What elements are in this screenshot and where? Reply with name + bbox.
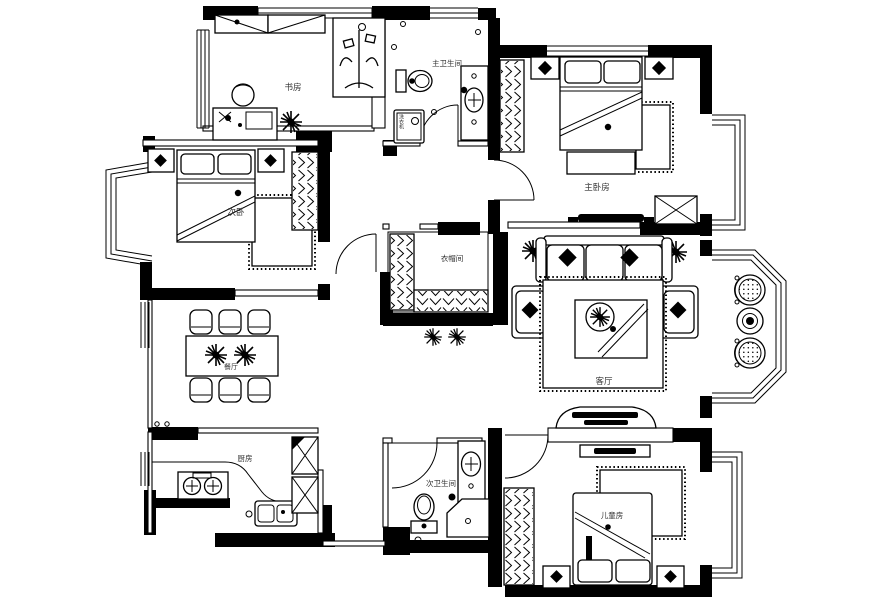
washing-machine-icon: 洗衣机 bbox=[394, 110, 424, 143]
room-cloakroom: 衣帽间 bbox=[390, 234, 488, 346]
floor-plan: 书房 洗衣机 主卫生间 bbox=[0, 0, 895, 604]
kids-balcony-window bbox=[712, 452, 742, 578]
kids-room-door bbox=[505, 435, 548, 478]
bed-icon bbox=[560, 57, 642, 150]
room-label-cloakroom: 衣帽间 bbox=[441, 253, 464, 263]
plant-icon bbox=[590, 307, 610, 327]
nightstand-icon bbox=[531, 57, 559, 79]
room-master-bedroom: 主卧房 bbox=[500, 57, 697, 224]
room-label-second-bathroom: 次卫生间 bbox=[426, 478, 456, 488]
room-label-second-bedroom: 次卧 bbox=[227, 207, 245, 218]
chair-icon bbox=[219, 378, 241, 402]
plant-icon bbox=[448, 328, 466, 346]
plant-icon bbox=[424, 328, 442, 346]
room-master-bathroom: 洗衣机 主卫生间 bbox=[392, 22, 489, 144]
nightstand-icon bbox=[543, 566, 570, 588]
bench-icon bbox=[567, 152, 635, 174]
closet-rail-icon bbox=[414, 290, 488, 312]
second-bedroom-bay-window bbox=[106, 162, 152, 266]
coat-rack-icon bbox=[333, 18, 385, 97]
room-study: 书房 bbox=[213, 15, 385, 140]
tv-cabinet-icon bbox=[556, 407, 656, 428]
bay-tub-chair-icon bbox=[735, 275, 765, 305]
washing-machine-label: 洗衣机 bbox=[398, 113, 404, 130]
pillow-icon bbox=[616, 560, 650, 582]
closet-rail-icon bbox=[390, 234, 414, 310]
chair-icon bbox=[248, 310, 270, 334]
wardrobe-icon bbox=[504, 488, 534, 585]
toilet-icon bbox=[396, 70, 432, 92]
nightstand-icon bbox=[258, 149, 284, 172]
wardrobe-icon bbox=[292, 152, 318, 230]
toilet-icon bbox=[411, 494, 437, 543]
cabinet-icon bbox=[292, 477, 318, 513]
sofa-icon bbox=[536, 236, 672, 282]
fridge-icon bbox=[292, 437, 318, 474]
pillow-icon bbox=[218, 154, 251, 174]
bed-icon bbox=[573, 493, 652, 585]
chair-icon bbox=[190, 310, 212, 334]
study-side-window bbox=[197, 30, 209, 128]
pillow-icon bbox=[181, 154, 214, 174]
master-bathroom-door bbox=[420, 105, 458, 143]
room-label-kitchen: 厨房 bbox=[238, 453, 253, 463]
room-second-bedroom: 次卧 bbox=[148, 149, 318, 269]
chair-icon bbox=[190, 378, 212, 402]
master-balcony-window bbox=[712, 115, 745, 230]
master-bedroom-window bbox=[547, 46, 648, 56]
plant-icon bbox=[280, 111, 302, 133]
room-label-master-bedroom: 主卧房 bbox=[584, 182, 610, 193]
desk-icon bbox=[213, 108, 277, 140]
stove-icon bbox=[178, 472, 228, 499]
room-label-dining: 餐厅 bbox=[224, 362, 238, 371]
nightstand-icon bbox=[657, 566, 684, 588]
room-label-kids: 儿童房 bbox=[601, 510, 624, 520]
wardrobe-icon bbox=[500, 60, 524, 152]
room-label-master-bathroom: 主卫生间 bbox=[432, 58, 462, 68]
chair-icon bbox=[219, 310, 241, 334]
tv-cabinet-icon bbox=[568, 214, 654, 222]
nightstand-icon bbox=[148, 149, 174, 172]
pillow-icon bbox=[565, 61, 601, 83]
floor-plan-drawing: 书房 洗衣机 主卫生间 bbox=[0, 0, 895, 604]
sink-icon bbox=[246, 501, 297, 526]
second-bedroom-door bbox=[336, 234, 376, 274]
vanity-sink-icon bbox=[458, 441, 485, 505]
coffee-table-icon bbox=[575, 300, 648, 358]
room-label-living: 客厅 bbox=[595, 376, 613, 387]
bed-icon bbox=[177, 150, 255, 242]
bathroom-window bbox=[430, 8, 478, 18]
master-bedroom-door bbox=[494, 160, 534, 200]
bay-round-table-icon bbox=[737, 308, 763, 334]
ac-unit-icon bbox=[655, 196, 697, 224]
room-kitchen: 厨房 bbox=[152, 437, 318, 526]
desk-chair-icon bbox=[232, 84, 254, 106]
nightstand-icon bbox=[645, 57, 673, 79]
pillow-icon bbox=[604, 61, 640, 83]
bay-tub-chair-icon bbox=[735, 338, 765, 368]
room-dining: 餐厅 bbox=[155, 310, 278, 426]
room-second-bathroom: 次卫生间 bbox=[411, 441, 489, 543]
vanity-sink-icon bbox=[461, 66, 488, 140]
pillow-icon bbox=[578, 560, 612, 582]
room-label-study: 书房 bbox=[284, 82, 301, 93]
desk-icon bbox=[580, 445, 650, 457]
chair-icon bbox=[248, 378, 270, 402]
room-living: 客厅 bbox=[512, 236, 765, 428]
shower-icon bbox=[447, 499, 489, 537]
room-kids: 儿童房 bbox=[504, 445, 685, 588]
